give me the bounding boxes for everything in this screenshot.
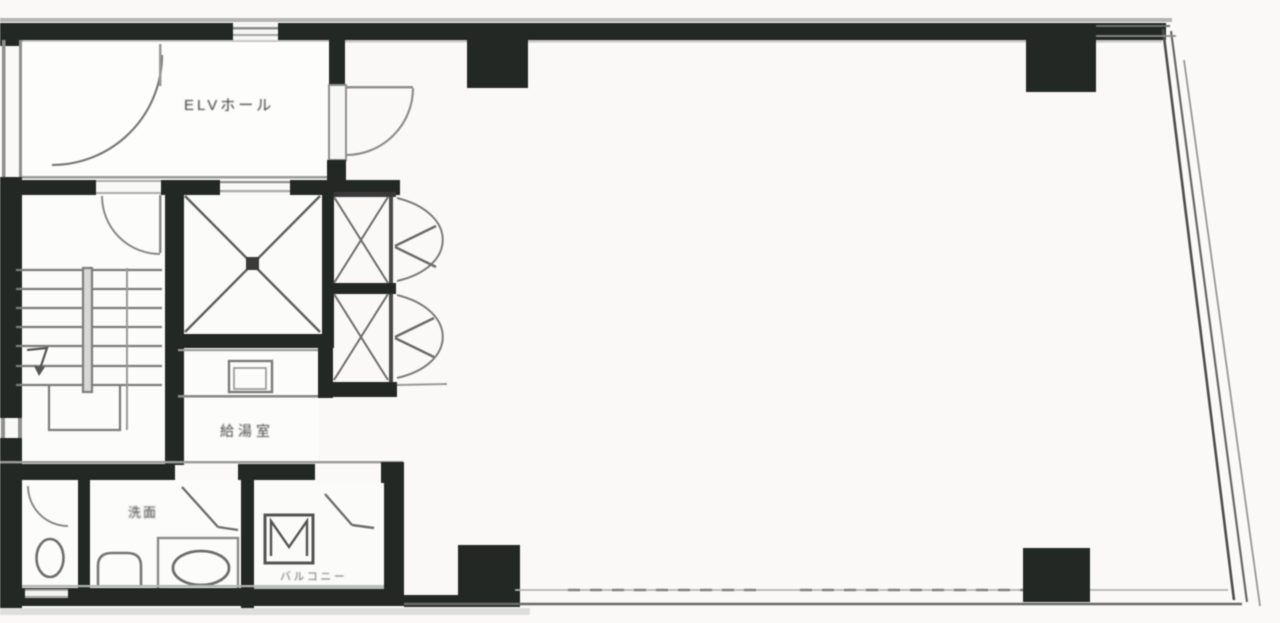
svg-text:給湯室: 給湯室 — [220, 423, 274, 439]
svg-text:バルコニー: バルコニー — [280, 570, 347, 583]
svg-text:洗面: 洗面 — [128, 505, 158, 520]
svg-text:ELVホール: ELVホール — [184, 97, 274, 114]
